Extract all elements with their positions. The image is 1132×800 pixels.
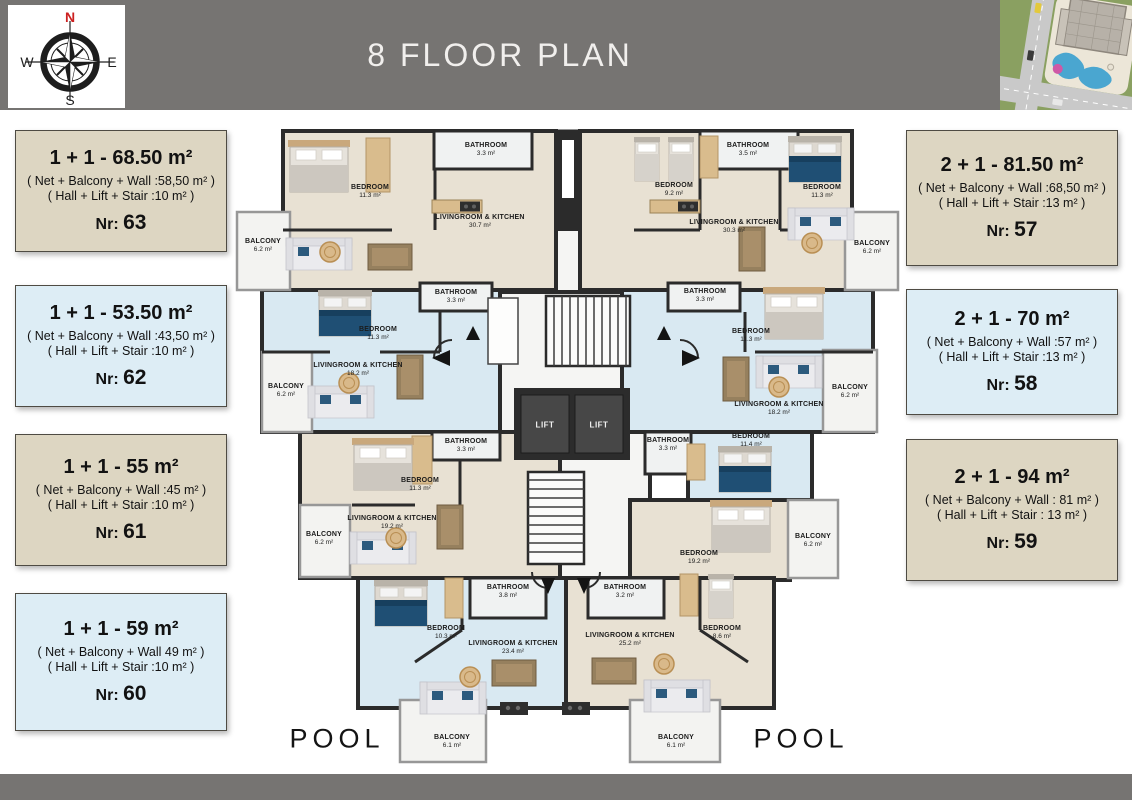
balcony-58	[823, 350, 877, 432]
staircase-top	[488, 296, 630, 366]
service-shaft	[556, 131, 580, 231]
balcony-61	[300, 505, 350, 577]
lift-1-label: LIFT	[536, 421, 555, 430]
pool-label-left: POOL	[289, 724, 384, 755]
pool-label-right: POOL	[753, 724, 848, 755]
lift-block	[514, 388, 630, 460]
balcony-59a	[788, 500, 838, 578]
lift-2-label: LIFT	[590, 421, 609, 430]
floorplan-drawing	[0, 0, 1132, 800]
staircase-bottom	[528, 472, 584, 564]
balcony-62	[262, 352, 312, 432]
footer-bar	[0, 774, 1132, 800]
balcony-63	[237, 212, 290, 290]
